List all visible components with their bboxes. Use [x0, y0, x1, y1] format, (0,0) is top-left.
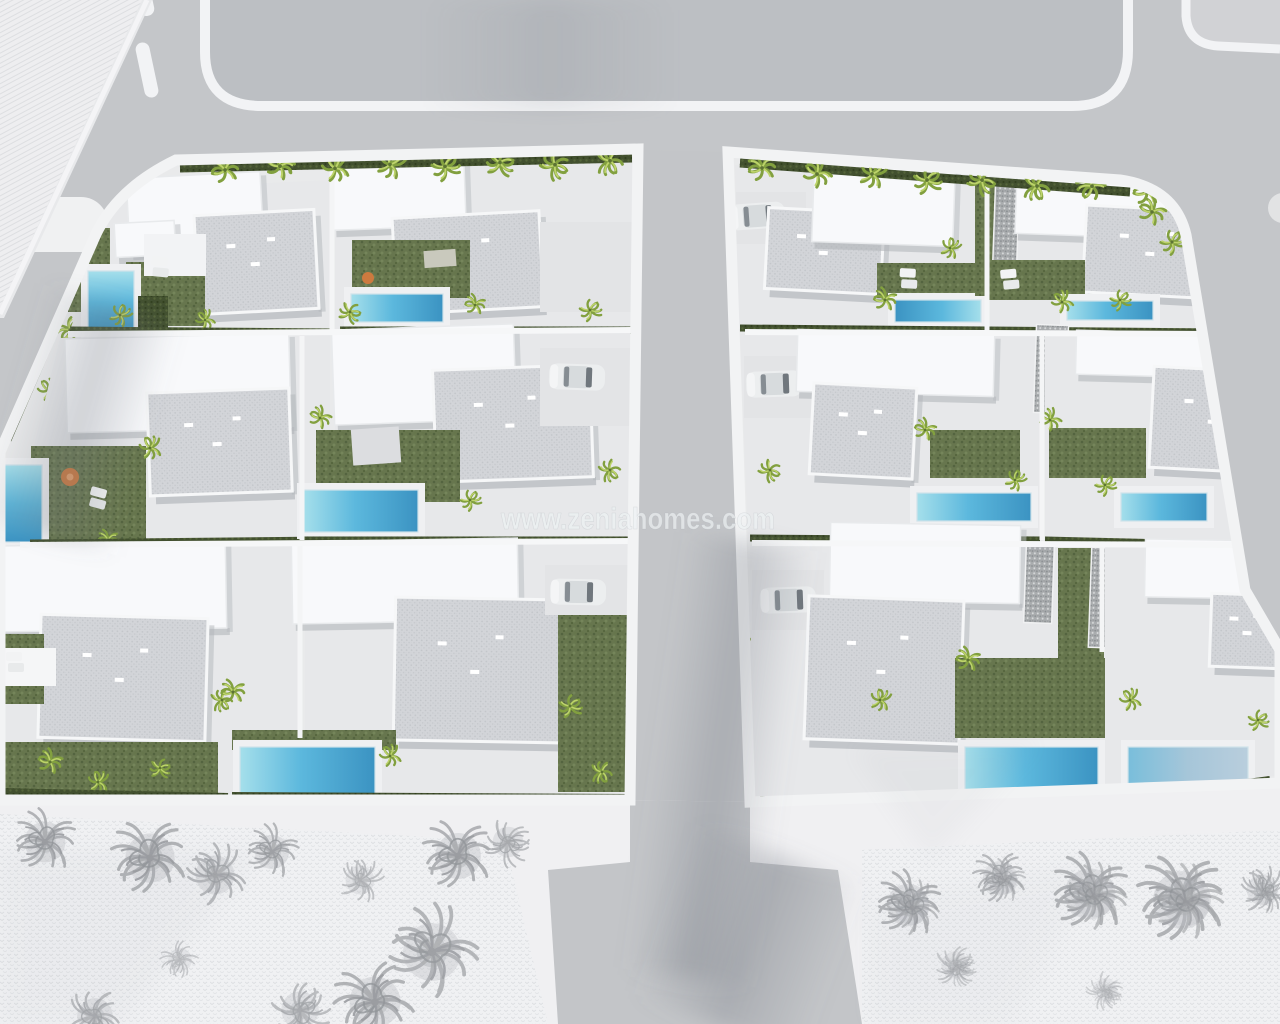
- svg-text:www.zeniahomes.com: www.zeniahomes.com: [500, 501, 775, 536]
